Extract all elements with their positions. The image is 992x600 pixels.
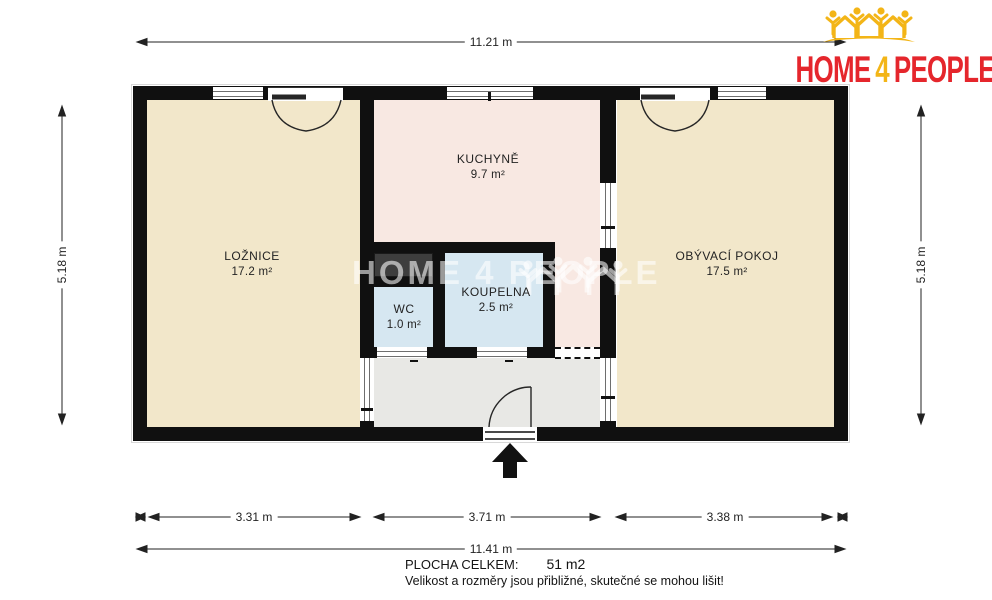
window-icon-bedroom [213,87,263,99]
wall-cluster-top [360,242,555,253]
dim-seg-1: 3.31 m [231,510,278,524]
wall-kitchen-living-low [600,421,616,427]
window-tick-kitchen-living [601,226,615,229]
dim-seg-2: 3.71 m [464,510,511,524]
wall-bedroom-middle-low [360,421,374,427]
door-tick-bedroom-hall [361,408,373,411]
wall-cluster-right [543,242,555,358]
door-tick-wc [410,360,418,362]
bedroom-area: 17.2 m² [224,265,280,279]
entrance-opening [483,427,537,441]
bedroom-label: LOŽNICE 17.2 m² [224,249,280,279]
room-hallway [374,358,600,427]
kitchen-name: KUCHYNĚ [457,152,519,167]
door-tick-hall-living [601,396,615,399]
wc-area: 1.0 m² [387,318,421,332]
door-opening-bedroom [268,87,343,101]
wall-bottom-left [133,427,483,441]
logo-word-4: 4 [875,49,889,90]
bathroom-label: KOUPELNA 2.5 m² [461,285,530,315]
door-opening-bedroom-hall [360,358,374,421]
door-opening-hall-living [600,358,616,421]
living-area: 17.5 m² [676,265,779,279]
logo-word-home: HOME [796,49,871,90]
wc-name: WC [387,302,421,317]
dim-seg-3: 3.38 m [702,510,749,524]
bathroom-name: KOUPELNA [461,285,530,300]
logo: HOME4PEOPLE [764,6,974,88]
floor-plan-page: 11.21 m 5.18 m 5.18 m 3.31 m 3.71 m 3.38… [0,0,992,600]
wall-cluster-bottom-2 [427,347,477,358]
kitchen-label: KUCHYNĚ 9.7 m² [457,152,519,182]
window-icon-living [718,87,766,99]
dim-left: 5.18 m [55,242,69,289]
door-tick-bathroom [505,360,513,362]
open-passage-dashed [555,347,600,359]
summary: PLOCHA CELKEM:51 m2 Velikost a rozměry j… [405,556,724,588]
dim-total: 11.41 m [465,542,517,556]
living-label: OBÝVACÍ POKOJ 17.5 m² [676,249,779,279]
wall-bottom-right [537,427,848,441]
door-opening-living [640,87,710,101]
wall-kitchen-living-mid [600,248,616,358]
total-area-value: 51 m2 [546,556,585,572]
bathroom-area: 2.5 m² [461,301,530,315]
logo-text: HOME4PEOPLE [796,51,943,88]
wc-label: WC 1.0 m² [387,302,421,332]
disclaimer-note: Velikost a rozměry jsou přibližné, skute… [405,574,724,588]
door-opening-wc [377,348,427,358]
wall-wardrobe-wc [374,277,433,287]
dim-top: 11.21 m [465,35,517,49]
logo-word-people: PEOPLE [894,49,992,90]
wall-cluster-bottom-3 [527,347,555,358]
window-mullion-kitchen [488,92,491,101]
wall-wc-bathroom [433,253,445,347]
logo-icon [809,6,929,46]
wall-cluster-bottom-1 [360,347,377,358]
entrance-threshold [485,431,535,440]
total-area-label: PLOCHA CELKEM: [405,557,518,572]
window-icon-kitchen-living [600,183,616,248]
door-opening-bathroom [477,348,527,358]
wardrobe [374,253,433,277]
entry-arrow-icon [492,443,528,478]
wall-kitchen-living-top [600,100,616,183]
bedroom-name: LOŽNICE [224,249,280,264]
room-kitchen-strip [555,242,600,347]
wall-bedroom-middle [360,100,374,358]
wall-right [834,86,848,441]
living-name: OBÝVACÍ POKOJ [676,249,779,264]
kitchen-area: 9.7 m² [457,168,519,182]
dim-right: 5.18 m [914,242,928,289]
wall-left [133,86,147,441]
